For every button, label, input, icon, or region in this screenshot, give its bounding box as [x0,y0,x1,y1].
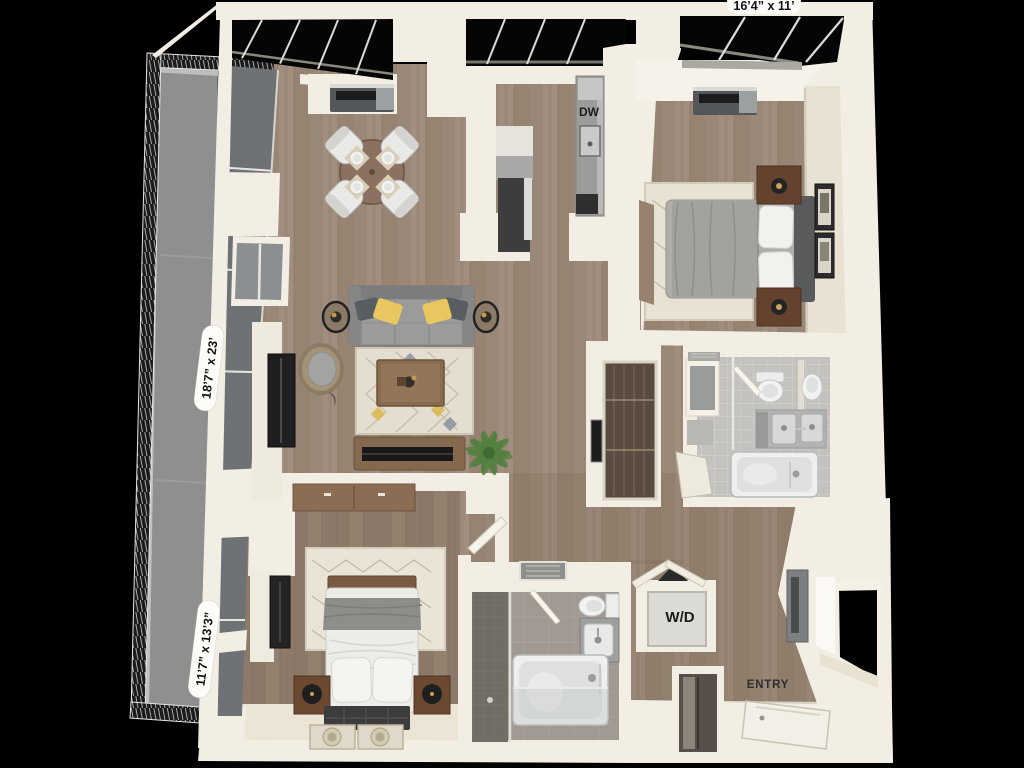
svg-text:DW: DW [579,105,600,119]
svg-text:ENTRY: ENTRY [747,679,790,691]
svg-text:16’4” x 11’: 16’4” x 11’ [733,0,794,13]
svg-text:W/D: W/D [665,609,694,626]
